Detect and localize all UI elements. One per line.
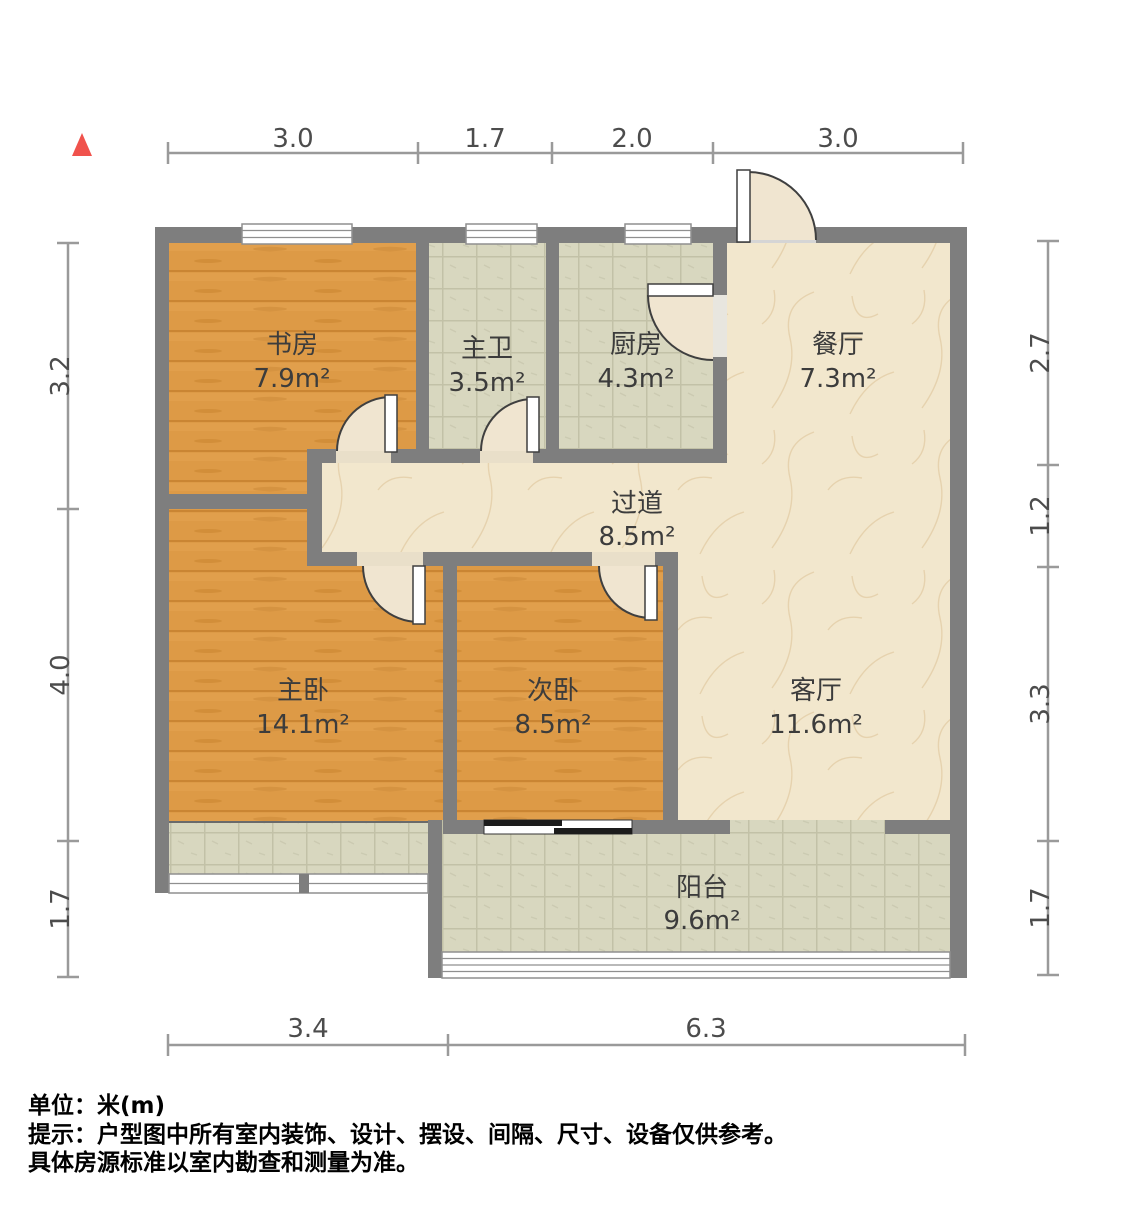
kitchen-door-threshold (713, 295, 727, 357)
wall-south-a (443, 820, 484, 834)
dim-bottom-0: 3.4 (287, 1014, 328, 1044)
floorplan-canvas: 书房 7.9m² 主卫 3.5m² 厨房 4.3m² 餐厅 7.3m² 过道 8… (0, 0, 1125, 1208)
bath-door-threshold (480, 449, 533, 463)
room-dining-area: 7.3m² (799, 364, 876, 394)
room-study-name: 书房 (266, 330, 318, 360)
master-balcony-window (169, 874, 428, 893)
wall-bath-kitchen (546, 243, 559, 463)
dim-top-3: 3.0 (817, 124, 858, 154)
dim-top-1: 1.7 (464, 124, 505, 154)
wall-hall-north-b (391, 449, 480, 463)
wall-study-bath (416, 243, 429, 463)
wall-master-second-divider (443, 552, 457, 822)
dim-right-2: 3.3 (1026, 683, 1056, 724)
wall-hall-south-a (307, 552, 357, 566)
room-master-bath-name: 主卫 (461, 334, 513, 364)
master-door-threshold (357, 552, 423, 566)
master-balcony-strip-floor (169, 822, 428, 874)
room-hallway-area: 8.5m² (598, 522, 675, 552)
second-bedroom-window (484, 820, 632, 834)
dim-left-0: 3.2 (46, 355, 76, 396)
wall-hall-north-c (533, 449, 727, 463)
room-hallway-name: 过道 (611, 489, 663, 519)
dim-right-3: 1.7 (1026, 887, 1056, 928)
room-master-bath-area: 3.5m² (448, 368, 525, 398)
dim-right: 2.7 1.2 3.3 1.7 (1026, 241, 1059, 975)
footer-unit: 单位：米(m) (28, 1092, 165, 1119)
wall-second-east (663, 552, 678, 834)
wall-south-b (632, 820, 730, 834)
dim-left-2: 1.7 (46, 888, 76, 929)
balcony-window (442, 952, 950, 978)
wall-outer-left (155, 227, 169, 893)
room-living-name: 客厅 (790, 676, 842, 706)
room-second-bedroom-area: 8.5m² (514, 710, 591, 740)
room-balcony-area: 9.6m² (663, 906, 740, 936)
dim-bottom-1: 6.3 (685, 1014, 726, 1044)
room-master-bedroom-area: 14.1m² (256, 710, 350, 740)
room-living-area: 11.6m² (769, 710, 863, 740)
room-kitchen-name: 厨房 (610, 330, 662, 360)
wall-master-north (155, 494, 307, 509)
second-door-threshold (592, 552, 655, 566)
room-master-bedroom-name: 主卧 (277, 676, 329, 706)
wall-outer-right (950, 227, 967, 978)
room-second-bedroom-name: 次卧 (527, 676, 579, 706)
study-window (242, 224, 352, 244)
study-door-threshold (336, 449, 391, 463)
wall-hall-north-a (322, 449, 336, 463)
wall-balcony-west (428, 820, 442, 978)
footer-tip-1: 提示：户型图中所有室内装饰、设计、摆设、间隔、尺寸、设备仅供参考。 (28, 1121, 787, 1148)
wall-kitchen-east-lower (713, 357, 727, 463)
footer: 单位：米(m) 提示：户型图中所有室内装饰、设计、摆设、间隔、尺寸、设备仅供参考… (28, 1092, 787, 1176)
room-study-area: 7.9m² (253, 364, 330, 394)
dim-right-0: 2.7 (1026, 332, 1056, 373)
kitchen-window (625, 224, 691, 244)
dim-bottom: 3.4 6.3 (168, 1014, 965, 1056)
wall-south-c (885, 820, 950, 834)
dim-top-2: 2.0 (611, 124, 652, 154)
room-dining-name: 餐厅 (812, 330, 864, 360)
wall-kitchen-east-upper (713, 243, 727, 295)
footer-tip-2: 具体房源标准以室内勘查和测量为准。 (28, 1149, 419, 1176)
wall-connector (307, 449, 322, 566)
dim-left: 3.2 4.0 1.7 (46, 243, 79, 977)
dim-left-1: 4.0 (46, 654, 76, 695)
bath-window (466, 224, 537, 244)
dim-top: 3.0 1.7 2.0 3.0 (168, 124, 963, 164)
dim-top-0: 3.0 (272, 124, 313, 154)
floorplan-page: 书房 7.9m² 主卫 3.5m² 厨房 4.3m² 餐厅 7.3m² 过道 8… (0, 0, 1125, 1208)
living-floor-west (678, 552, 727, 821)
entry-door (737, 170, 816, 242)
dim-right-1: 1.2 (1026, 495, 1056, 536)
room-balcony-name: 阳台 (676, 873, 728, 903)
north-arrow-icon (72, 133, 92, 156)
room-kitchen-area: 4.3m² (597, 364, 674, 394)
